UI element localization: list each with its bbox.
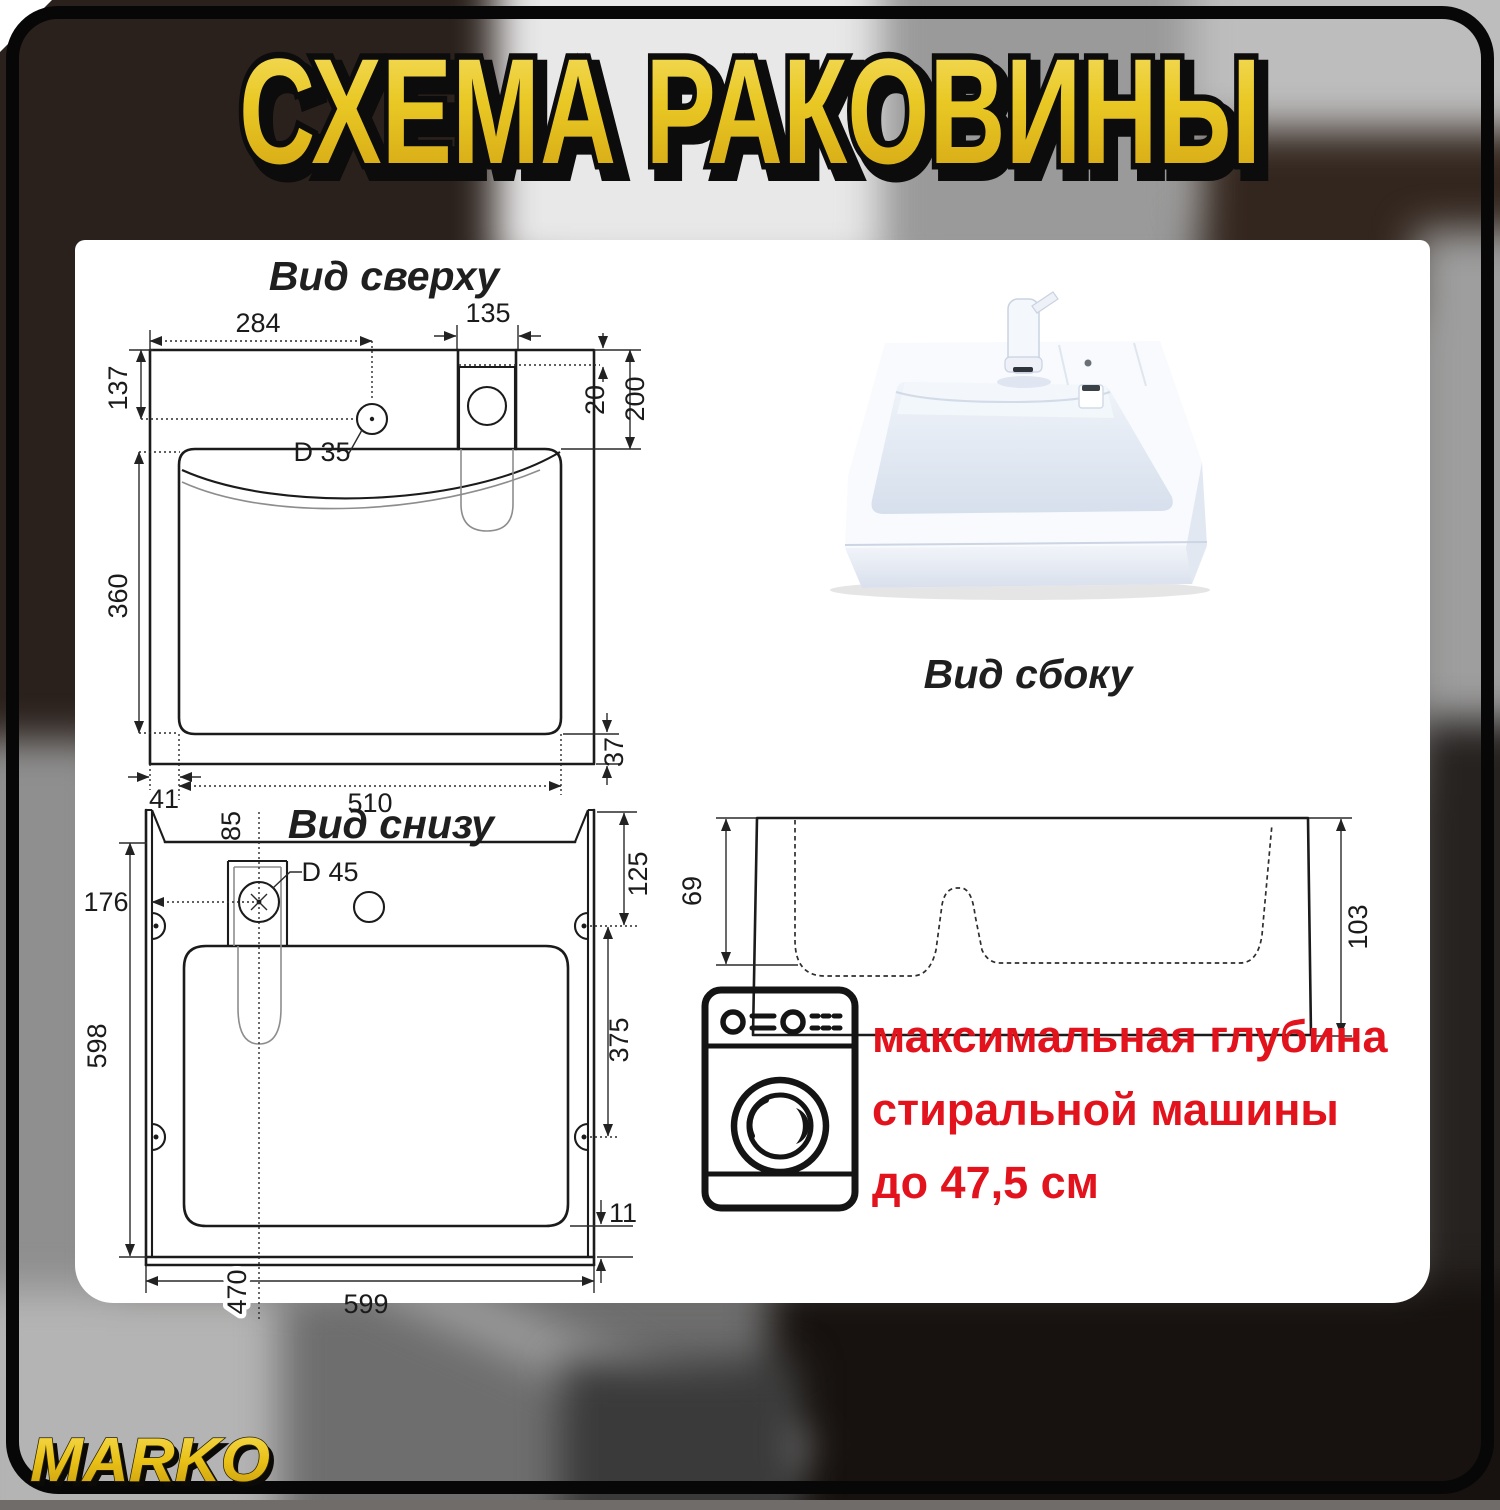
dim-label: 176 <box>83 887 128 917</box>
brand-logo: MARKO MARKO <box>0 1390 420 1510</box>
dim-label: 200 <box>620 376 650 421</box>
washing-machine-note: максимальная глубина стиральной машины д… <box>872 1000 1412 1219</box>
washing-machine-icon <box>705 990 855 1208</box>
note-line-3: до 47,5 см <box>872 1146 1412 1219</box>
dim-label: 470 <box>222 1269 252 1314</box>
sink-scheme-poster: { "title": "СХЕМА РАКОВИНЫ", "brand": "M… <box>0 0 1500 1500</box>
dim-label: 375 <box>604 1017 634 1062</box>
dim-label: 103 <box>1343 904 1373 949</box>
bottom-view-drawing: 85 176 D 45 125 598 375 11 470 599 <box>82 810 653 1322</box>
note-line-2: стиральной машины <box>872 1073 1412 1146</box>
sink-photo-illustration <box>830 292 1210 600</box>
dim-label: 284 <box>235 308 280 338</box>
brand-logo-text: MARKO <box>30 1426 270 1495</box>
dim-label: 69 <box>677 876 707 906</box>
dim-label: 20 <box>580 385 610 415</box>
dim-label: 85 <box>216 811 246 841</box>
dim-label: 41 <box>149 784 179 814</box>
dim-label: 360 <box>103 573 133 618</box>
side-view-title: Вид сбоку <box>924 651 1135 697</box>
top-view-drawing: 284 135 137 20 200 D 35 360 41 510 37 <box>103 298 650 818</box>
dim-label: 137 <box>103 365 133 410</box>
sink-diagrams-svg: Вид сверху Вид снизу Вид сбоку <box>0 0 1500 1500</box>
dim-label: D 45 <box>301 857 358 887</box>
note-line-1: максимальная глубина <box>872 1000 1412 1073</box>
top-view-title: Вид сверху <box>269 253 502 299</box>
dim-label: 510 <box>347 788 392 818</box>
dim-label: 599 <box>343 1289 388 1319</box>
dim-label: 11 <box>609 1198 637 1228</box>
dim-label: 125 <box>623 851 653 896</box>
dim-label: 135 <box>465 298 510 328</box>
dim-label: D 35 <box>293 437 350 467</box>
dim-label: 37 <box>599 737 629 767</box>
dim-label: 598 <box>82 1023 112 1068</box>
